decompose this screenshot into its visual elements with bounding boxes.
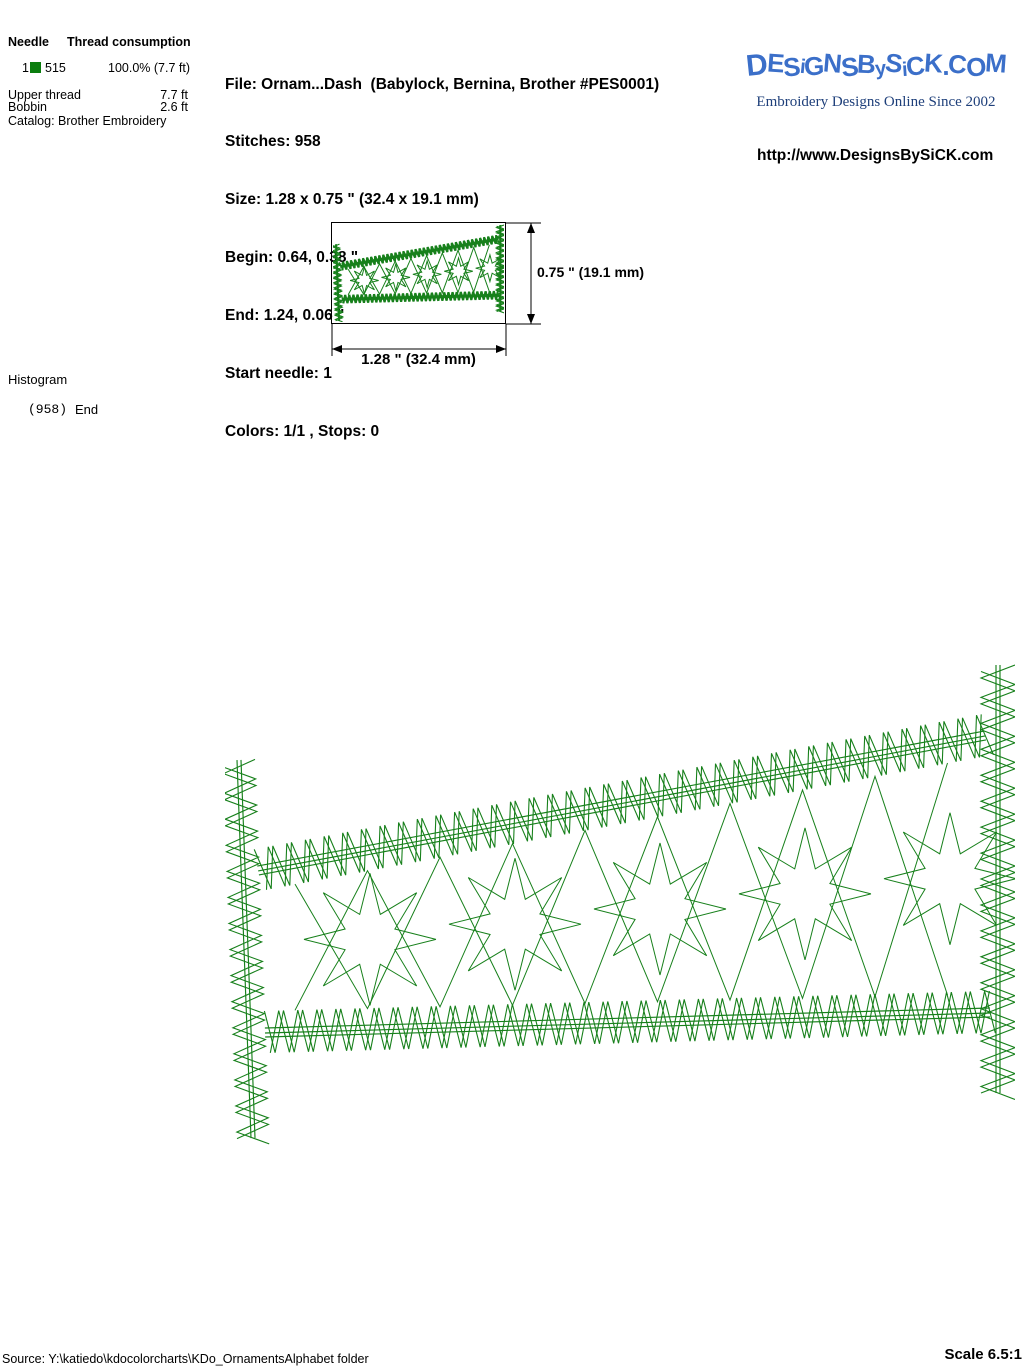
histogram-stitch-count: (958): [28, 402, 67, 417]
catalog-line: Catalog: Brother Embroidery: [8, 114, 166, 128]
colors-line: Colors: 1/1 , Stops: 0: [225, 422, 659, 441]
designsbysick-logo: DESiGNSBySiCK.COM: [728, 48, 1024, 94]
footer-scale-label: Scale 6.5:1: [944, 1346, 1022, 1363]
height-dimension-label: 0.75 " (19.1 mm): [537, 264, 644, 280]
bobbin-label: Bobbin: [8, 100, 47, 114]
footer-source-path: Source: Y:\katiedo\kdocolorcharts\KDo_Or…: [2, 1352, 369, 1366]
size-line: Size: 1.28 x 0.75 " (32.4 x 19.1 mm): [225, 190, 659, 209]
brand-tagline: Embroidery Designs Online Since 2002: [728, 94, 1024, 111]
design-sheet-page: Needle Thread consumption 1 515 100.0% (…: [0, 0, 1024, 1370]
thread-number: 515: [45, 61, 66, 75]
brand-url-link[interactable]: http://www.DesignsBySiCK.com: [757, 147, 993, 165]
file-name-line: File: Ornam...Dash (Babylock, Bernina, B…: [225, 75, 659, 94]
large-design-canvas: [225, 660, 1015, 1145]
histogram-title: Histogram: [8, 372, 67, 387]
histogram-end-label: End: [75, 402, 98, 417]
stitches-line: Stitches: 958: [225, 132, 659, 151]
brand-panel: DESiGNSBySiCK.COM Embroidery Designs Onl…: [728, 48, 1024, 111]
thread-consumption-column-header: Thread consumption: [67, 35, 191, 49]
needle-column-header: Needle: [8, 35, 49, 49]
thread-consumption-value: 100.0% (7.7 ft): [108, 61, 190, 75]
bobbin-value: 2.6 ft: [130, 100, 188, 114]
thread-color-swatch: [30, 62, 41, 73]
width-dimension-label: 1.28 " (32.4 mm): [331, 351, 506, 368]
needle-number: 1: [22, 61, 29, 75]
